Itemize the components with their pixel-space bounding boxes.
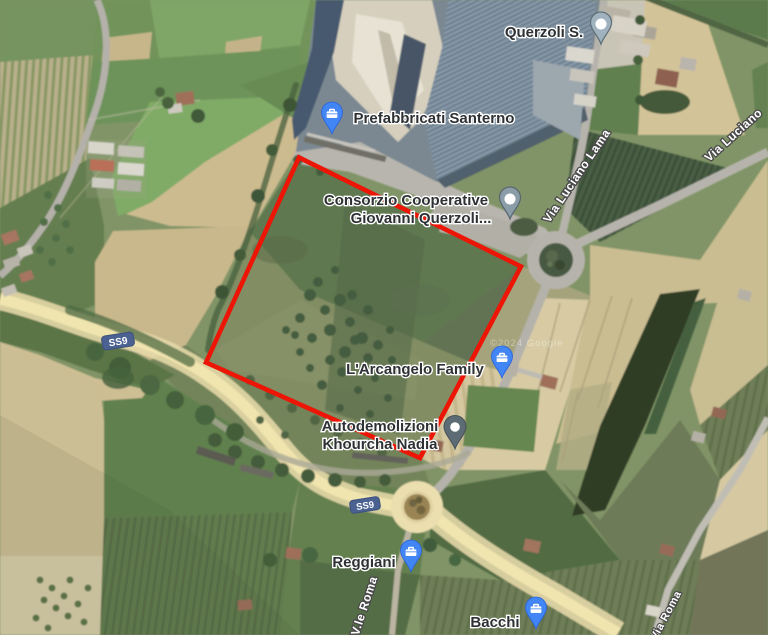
svg-text:Consorzio Cooperative: Consorzio Cooperative [324,192,488,209]
svg-text:Khourcha Nadia: Khourcha Nadia [322,436,438,453]
svg-text:Autodemolizioni: Autodemolizioni [322,418,439,435]
svg-text:L'Arcangelo Family: L'Arcangelo Family [346,361,484,378]
svg-text:Querzoli S.: Querzoli S. [505,24,583,41]
svg-text:Bacchi: Bacchi [470,614,519,631]
svg-text:Reggiani: Reggiani [332,554,395,571]
svg-text:Giovanni Querzoli...: Giovanni Querzoli... [351,210,492,227]
svg-text:Prefabbricati Santerno: Prefabbricati Santerno [354,110,515,127]
